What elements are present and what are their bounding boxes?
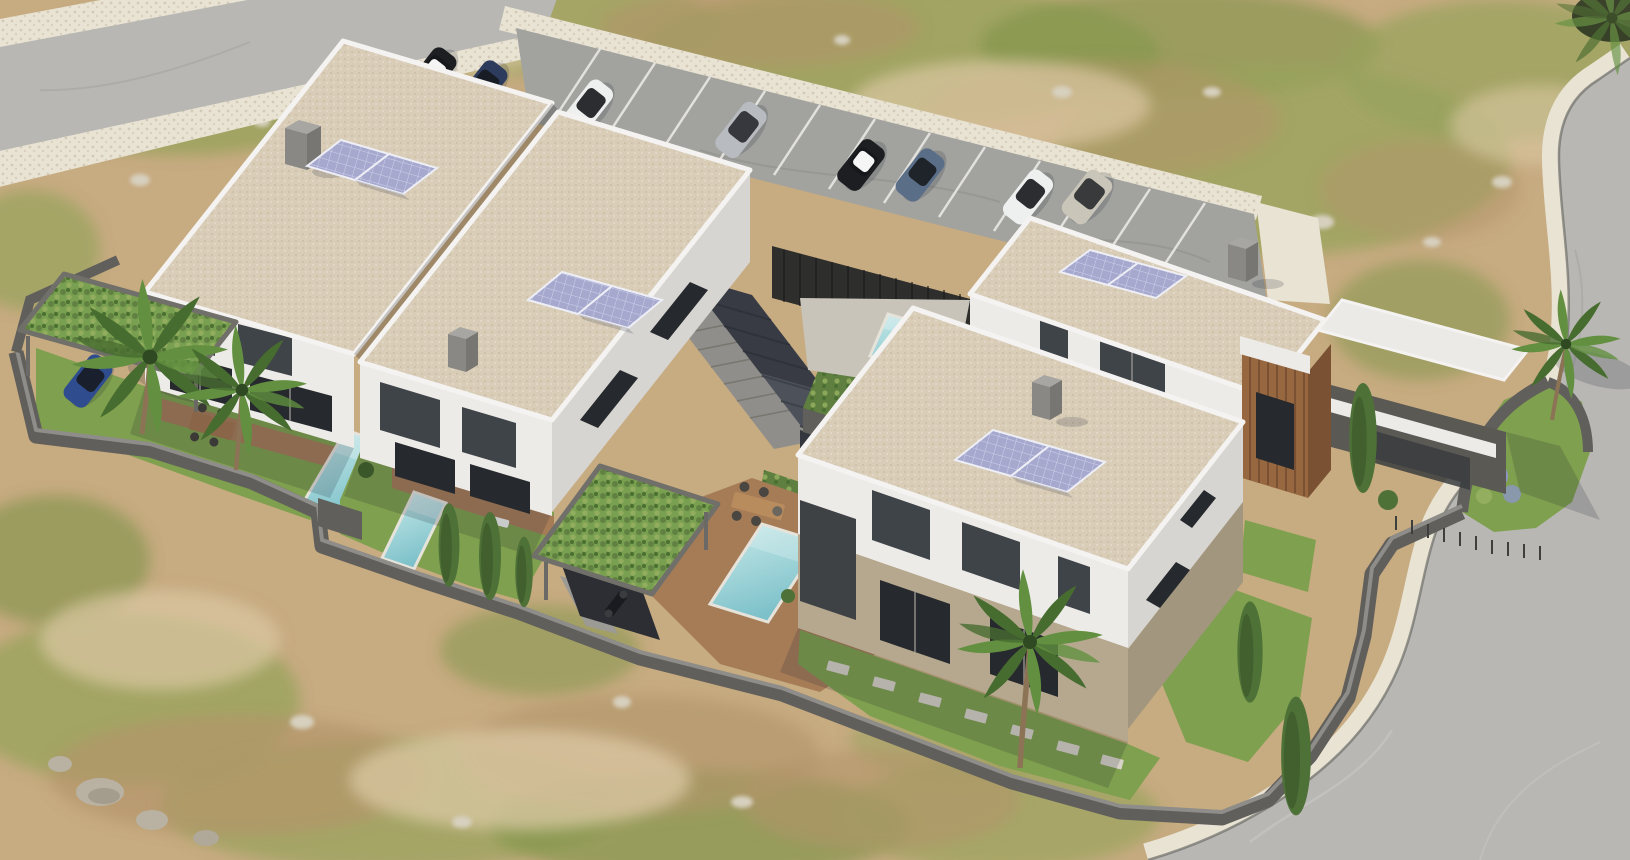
chimney-b <box>448 327 478 372</box>
render-canvas: Aerial 3D architectural rendering of a m… <box>0 0 1630 860</box>
tower-window <box>1256 392 1294 470</box>
bush-court-b <box>358 462 374 478</box>
bush-east <box>1378 490 1398 510</box>
aerial-render: Aerial 3D architectural rendering of a m… <box>0 0 1630 860</box>
entry-recess <box>800 500 856 620</box>
potted-plant <box>781 589 795 603</box>
